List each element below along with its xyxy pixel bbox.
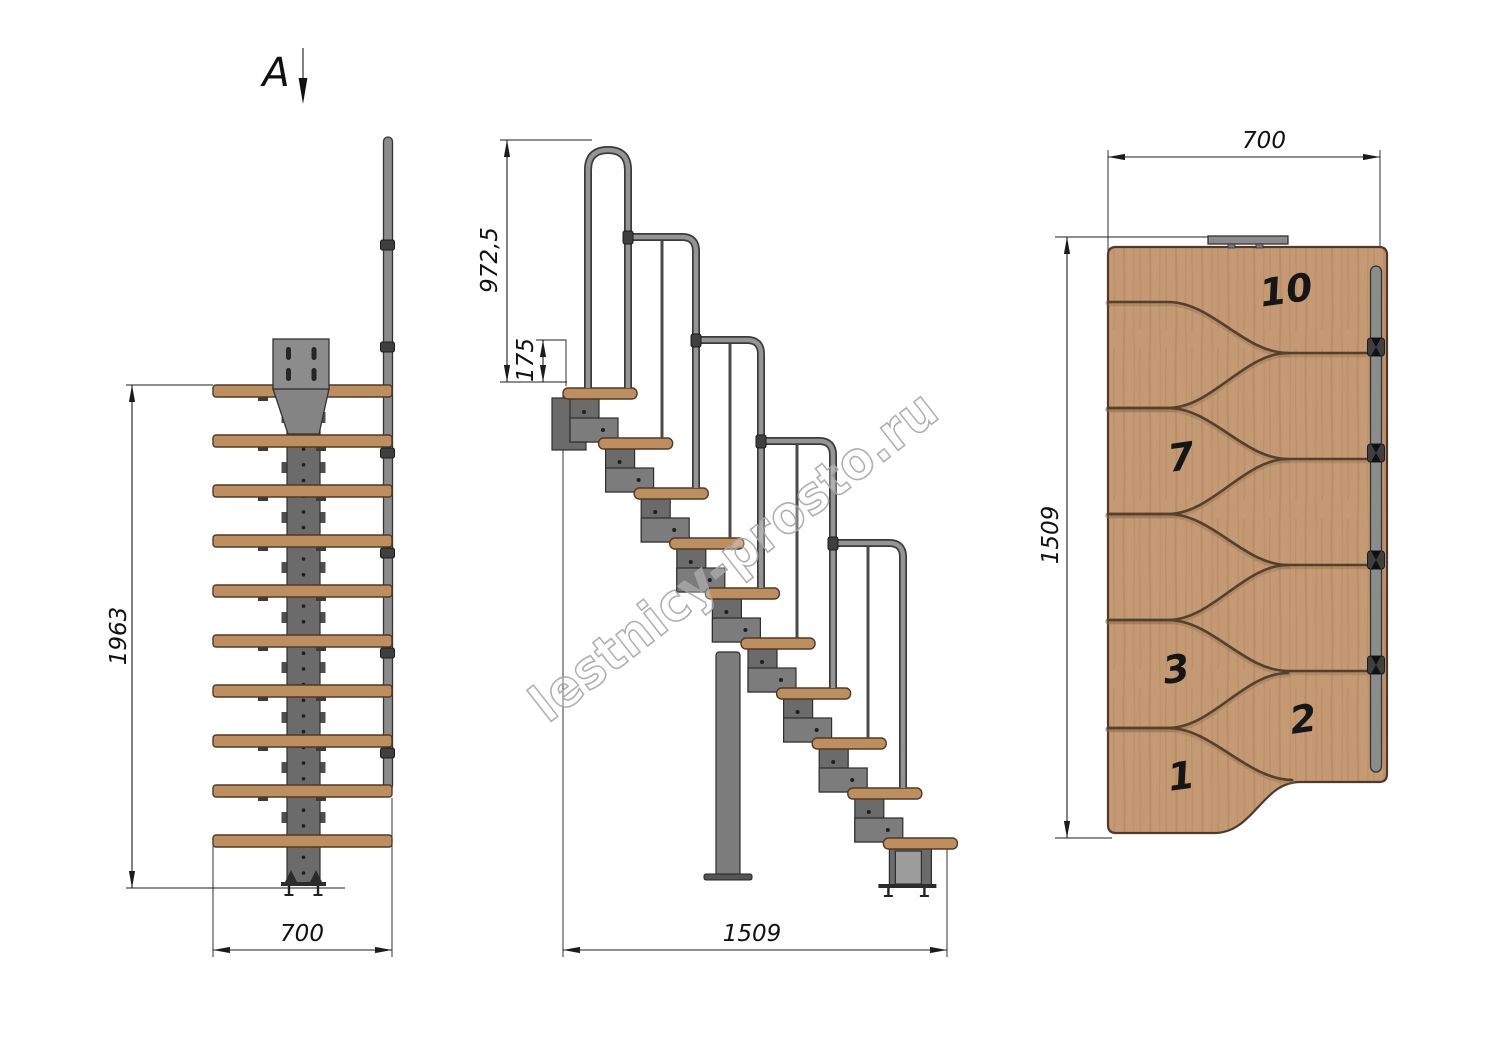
top-handrail [1368, 266, 1385, 772]
module-bolt [582, 410, 586, 414]
column-tab [282, 812, 287, 823]
column-rivet [302, 651, 306, 655]
column-rivet [302, 777, 306, 781]
module-bolt [867, 810, 871, 814]
dim-side-length-value: 1509 [723, 921, 782, 947]
column-rivet [302, 526, 306, 530]
module-bolt [672, 528, 676, 532]
front-tread [213, 685, 392, 697]
column-rivet [302, 761, 306, 765]
column-rivet [302, 730, 306, 734]
column-tab [321, 712, 326, 723]
side-tread [599, 438, 673, 449]
front-tread [213, 435, 392, 447]
front-tread [213, 835, 392, 847]
staircase-drawing-canvas: A 1963 700 [0, 0, 1500, 1061]
post-clamp [381, 240, 395, 250]
step-number-10: 10 [1257, 265, 1315, 316]
column-rivet [302, 447, 306, 451]
column-rivet [302, 463, 306, 467]
column-tab [282, 512, 287, 523]
column-rivet [302, 479, 306, 483]
module-bolt [886, 828, 890, 832]
column-rivet [302, 699, 306, 703]
column-tab [282, 462, 287, 473]
post-clamp [381, 548, 395, 558]
side-tread [812, 738, 886, 749]
dim-side-rise: 175 [513, 338, 566, 386]
column-tab [282, 562, 287, 573]
module-bolt [637, 478, 641, 482]
dim-side-rise-value: 175 [513, 338, 539, 382]
column-tab [282, 662, 287, 673]
handrail-loop [588, 150, 628, 388]
module-bolt [618, 460, 622, 464]
base-plate [878, 884, 936, 888]
column-tab [321, 812, 326, 823]
module-bolt [724, 610, 728, 614]
side-tread [563, 388, 637, 399]
module-bolt [779, 678, 783, 682]
column-rivet [302, 871, 306, 875]
column-rivet [302, 824, 306, 828]
mounting-gusset [273, 389, 329, 434]
top-view-panel [1108, 247, 1387, 833]
column-tab [321, 562, 326, 573]
technical-drawing: A 1963 700 [0, 0, 1500, 1061]
front-tread [213, 485, 392, 497]
post-clamp [381, 342, 395, 352]
column-rivet [302, 557, 306, 561]
top-view: 700 1509 10 7 3 2 1 [1038, 128, 1387, 838]
module-bolt [743, 628, 747, 632]
post-clamp [381, 648, 395, 658]
column-tab [321, 762, 326, 773]
column-tab [321, 662, 326, 673]
dim-front-width-value: 700 [280, 921, 324, 947]
dim-front-height-value: 1963 [106, 607, 132, 666]
column-rivet [302, 620, 306, 624]
module-bolt [760, 660, 764, 664]
front-tread [213, 585, 392, 597]
module-bolt [601, 428, 605, 432]
side-tread [883, 838, 957, 849]
side-tread [634, 488, 708, 499]
column-rivet [302, 808, 306, 812]
section-marker: A [259, 48, 307, 104]
column-tab [321, 462, 326, 473]
base-module-plate [895, 851, 921, 884]
module-bolt [831, 760, 835, 764]
dim-side-handrail-height-value: 972,5 [477, 227, 503, 293]
column-rivet [302, 573, 306, 577]
side-tread [741, 638, 815, 649]
dim-top-length-value: 1509 [1038, 506, 1064, 565]
post-clamp [381, 748, 395, 758]
column-tab [321, 512, 326, 523]
side-tread [848, 788, 922, 799]
side-tread [777, 688, 851, 699]
front-tread [213, 785, 392, 797]
section-arrow-icon [299, 78, 308, 104]
front-tread [213, 735, 392, 747]
dim-top-width-value: 700 [1242, 128, 1286, 154]
column-rivet [302, 604, 306, 608]
module-bolt [815, 728, 819, 732]
front-tread [213, 535, 392, 547]
column-tab [282, 762, 287, 773]
column-tab [282, 712, 287, 723]
post-clamp [381, 448, 395, 458]
module-bolt [796, 710, 800, 714]
module-bolt [850, 778, 854, 782]
support-post [704, 652, 752, 880]
column-tab [321, 612, 326, 623]
column-rivet [302, 510, 306, 514]
column-rivet [302, 856, 306, 860]
front-view: 1963 700 [106, 137, 395, 957]
section-label: A [259, 50, 289, 96]
mounting-plate [273, 339, 329, 389]
column-tab [282, 612, 287, 623]
front-tread [213, 635, 392, 647]
column-rivet [302, 667, 306, 671]
module-bolt [653, 510, 657, 514]
dim-top-width: 700 [1108, 128, 1380, 252]
column-rivet [302, 714, 306, 718]
